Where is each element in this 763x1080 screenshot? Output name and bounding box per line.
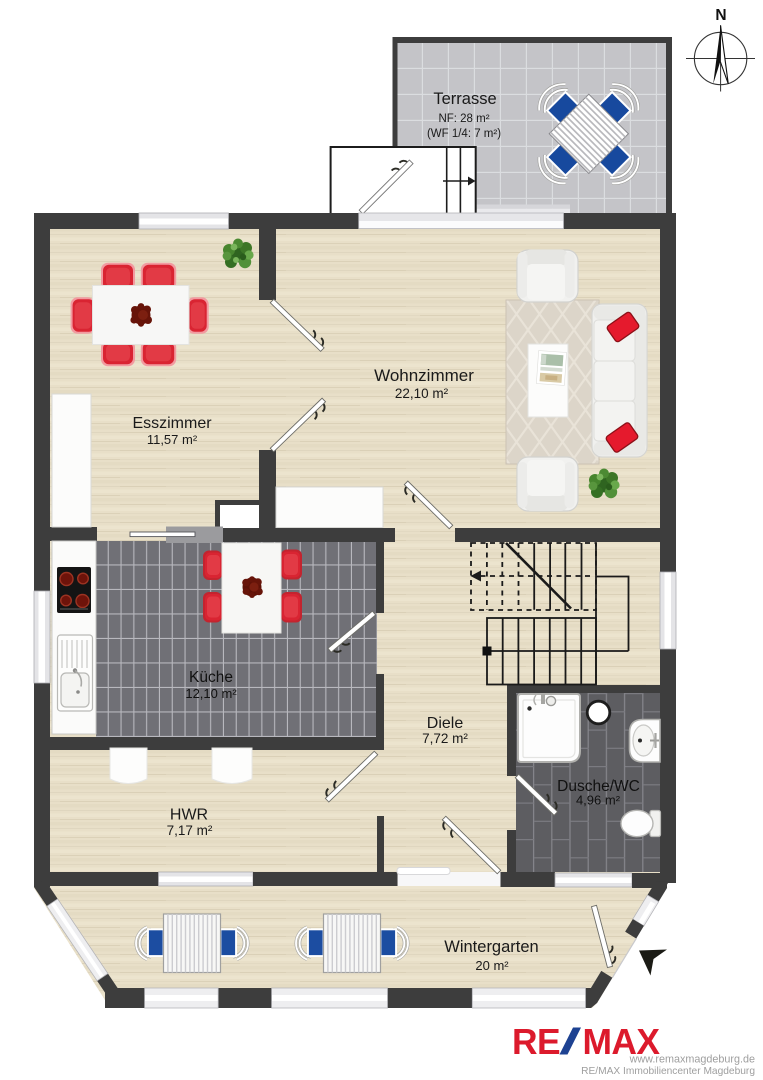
svg-text:7,72 m²: 7,72 m²: [422, 731, 468, 746]
svg-text:Küche: Küche: [189, 669, 233, 686]
svg-text:Terrasse: Terrasse: [433, 90, 496, 108]
svg-text:www.remaxmagdeburg.de: www.remaxmagdeburg.de: [629, 1054, 755, 1066]
svg-text:11,57 m²: 11,57 m²: [147, 432, 198, 447]
svg-text:Esszimmer: Esszimmer: [132, 415, 212, 432]
svg-text:NF: 28 m²: NF: 28 m²: [438, 113, 489, 125]
svg-text:Wintergarten: Wintergarten: [444, 938, 538, 956]
svg-text:20 m²: 20 m²: [475, 958, 509, 973]
svg-text:Diele: Diele: [427, 715, 464, 732]
svg-text:22,10 m²: 22,10 m²: [395, 386, 449, 401]
svg-text:HWR: HWR: [170, 807, 208, 824]
svg-text:Wohnzimmer: Wohnzimmer: [374, 366, 474, 385]
svg-text:RE: RE: [512, 1021, 560, 1063]
svg-text:RE/MAX Immobiliencenter Magdeb: RE/MAX Immobiliencenter Magdeburg: [581, 1066, 755, 1077]
svg-text:N: N: [715, 7, 726, 24]
svg-text:7,17 m²: 7,17 m²: [167, 823, 213, 838]
svg-text:12,10 m²: 12,10 m²: [185, 686, 237, 701]
svg-text:(WF 1/4: 7 m²): (WF 1/4: 7 m²): [427, 128, 501, 140]
svg-text:4,96 m²: 4,96 m²: [576, 793, 621, 808]
